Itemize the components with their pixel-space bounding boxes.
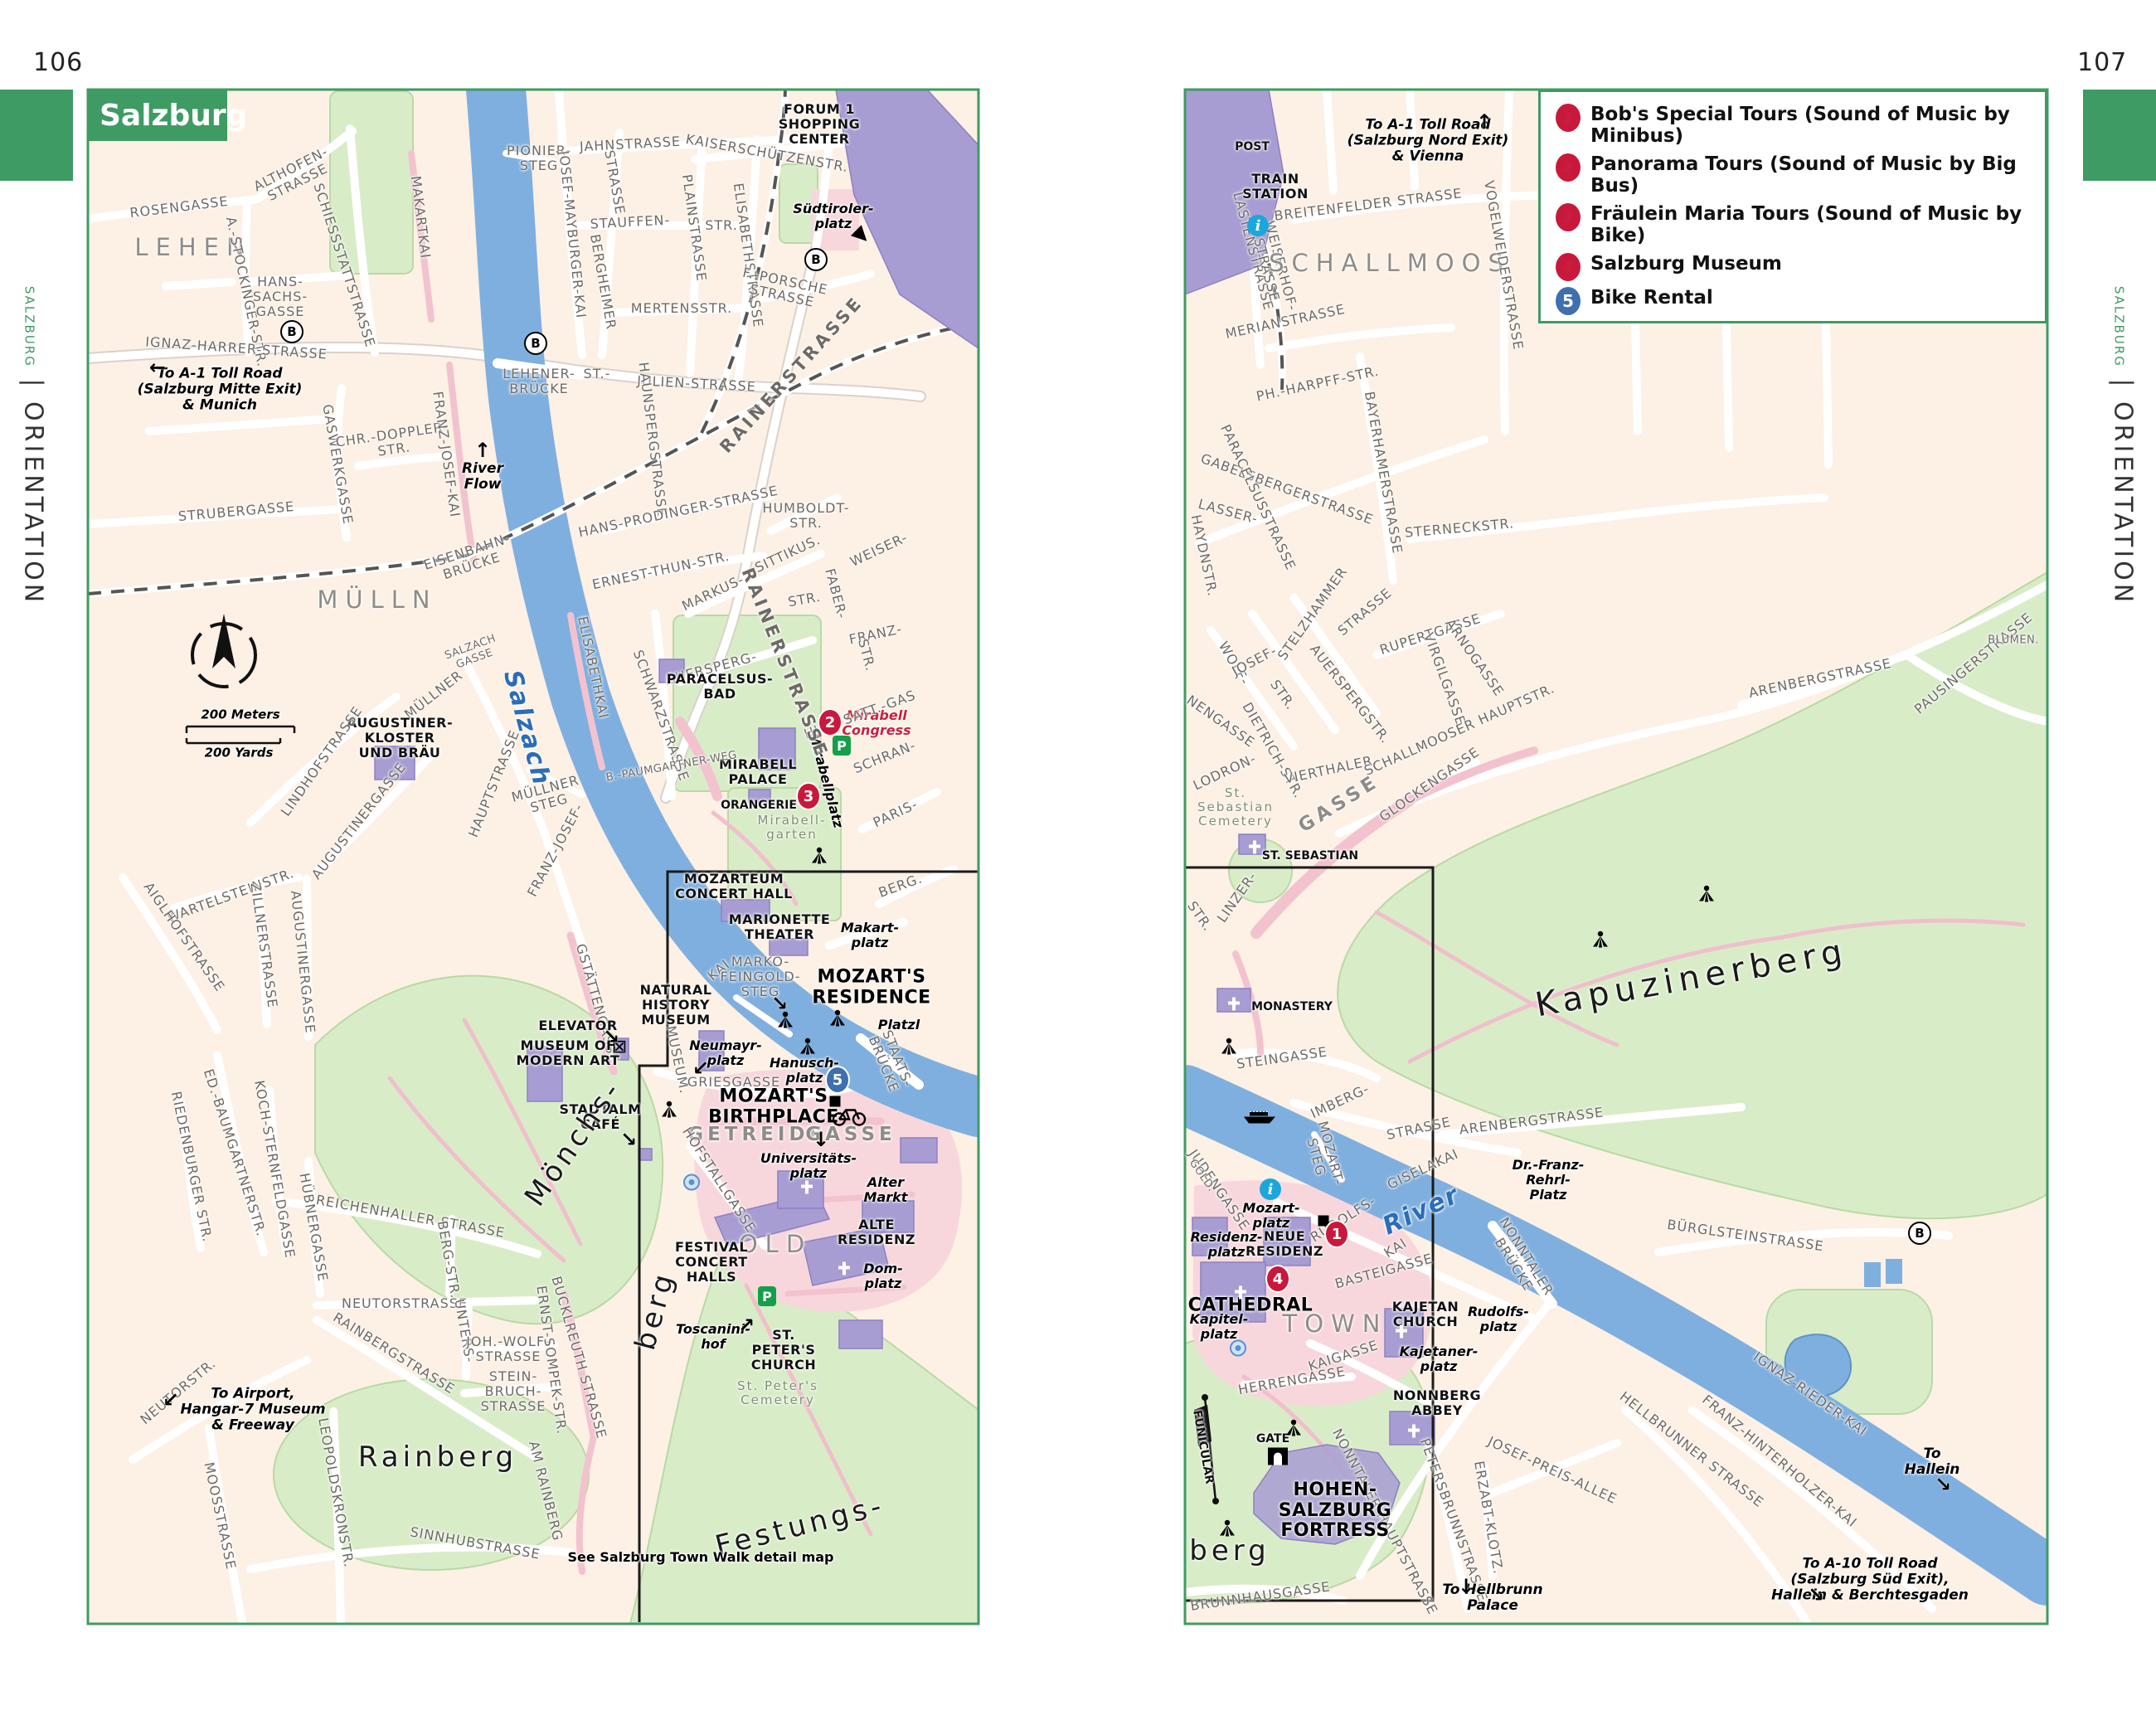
sidebar-tab-right: SALZBURG | ORIENTATION (2109, 280, 2138, 612)
legend-label: Bob's Special Tours (Sound of Music by M… (1590, 104, 2037, 148)
direction-arrow-icon: ↙ (163, 1390, 179, 1410)
map-label: To A-10 Toll Road (Salzburg Süd Exit), H… (1771, 1556, 1969, 1603)
direction-arrow-icon: ← (149, 357, 166, 377)
church-icon (1393, 1324, 1410, 1343)
sidebar-divider: | (19, 378, 48, 390)
sight-marker-3: 3 (796, 782, 821, 810)
sidebar-orientation: ORIENTATION (19, 401, 48, 605)
legend-item: 5 Bike Rental (1556, 287, 2037, 315)
sidebar-block-right (2083, 90, 2156, 181)
map-label: Kajetaner- platz (1400, 1344, 1479, 1374)
sidebar-orientation: ORIENTATION (2109, 401, 2138, 605)
church-icon (1226, 996, 1242, 1015)
sight-icon (828, 1008, 847, 1029)
legend-marker-5: 5 (1556, 287, 1581, 315)
sight-marker-1: 1 (1324, 1220, 1349, 1248)
parking-icon: P (758, 1286, 776, 1306)
sight-marker-4: 4 (1265, 1265, 1290, 1293)
map-label: 200 Yards (205, 746, 274, 760)
fortress-gate-icon (1267, 1446, 1289, 1469)
sidebar-block-left (0, 90, 73, 181)
direction-arrow-icon: ↑ (474, 440, 491, 460)
page-number-right: 107 (2077, 48, 2127, 77)
map-label: To Airport, Hangar-7 Museum & Freeway (180, 1386, 325, 1433)
fountain-icon (682, 1173, 701, 1194)
direction-arrow-icon: ↘ (603, 1027, 619, 1047)
map-label: HANS- SACHS- GASSE (253, 275, 308, 319)
church-icon (799, 1179, 815, 1198)
map-label: MARIONETTE THEATER (729, 912, 831, 942)
direction-arrow-icon: ↙ (692, 1058, 709, 1078)
legend-marker-4: 4 (1556, 253, 1581, 281)
sight-icon (660, 1100, 678, 1120)
map-label: ST. SEBASTIAN (1262, 850, 1358, 863)
legend-item: 4 Salzburg Museum (1556, 253, 2037, 281)
sight-icon (1218, 1518, 1236, 1539)
legend-marker-3: 3 (1556, 203, 1581, 231)
map-label: NONNBERG ABBEY (1393, 1388, 1481, 1418)
map-label: JOH.-WOLF- STRASSE (466, 1334, 551, 1364)
direction-arrow-icon: ↓ (1458, 1577, 1474, 1596)
sight-marker-5: 5 (825, 1066, 850, 1094)
map-title-text: Salzburg (100, 99, 247, 133)
bus-stop-icon: B (1908, 1222, 1931, 1245)
map-label: River Flow (462, 461, 503, 493)
map-label: MARKO- FEINGOLD- STEG (721, 955, 801, 999)
map-label: STEIN- BRUCH- STRASSE (481, 1369, 546, 1414)
map-label: Rainberg (358, 1441, 517, 1473)
legend-label: Bike Rental (1590, 287, 1713, 309)
sight-marker-2: 2 (818, 708, 842, 736)
direction-arrow-icon: ↘ (620, 1130, 637, 1149)
sight-icon (799, 1037, 817, 1057)
map-label: Kapitel- platz (1190, 1312, 1249, 1342)
direction-arrow-icon: ↘ (1808, 1585, 1824, 1605)
sight-icon (1591, 930, 1610, 950)
map-label: Rudolfs- platz (1468, 1305, 1529, 1334)
boat-cruise-icon (1243, 1109, 1276, 1128)
map-label: TRAIN STATION (1242, 172, 1309, 202)
map-label: NEUE RESIDENZ (1246, 1229, 1323, 1259)
map-label: OLD (739, 1231, 812, 1257)
legend-label: Fräulein Maria Tours (Sound of Music by … (1590, 203, 2037, 247)
map-label: To Hallein (1905, 1446, 1960, 1478)
map-label: BLUMEN. (1988, 635, 2039, 648)
map-title: Salzburg (88, 90, 227, 141)
map-label: SCHALLMOOS (1269, 250, 1511, 276)
map-label: STR. (705, 218, 738, 233)
sight-icon (1697, 884, 1716, 905)
map-label: See Salzburg Town Walk detail map (568, 1550, 834, 1565)
sight-icon (1220, 1037, 1238, 1057)
map-label: MERTENSSTR. (631, 301, 732, 316)
bus-stop-icon: B (524, 332, 547, 355)
map-label: 200 Meters (201, 708, 279, 722)
direction-arrow-icon: ↗ (738, 1315, 755, 1335)
church-icon (1406, 1423, 1422, 1442)
book-spread: 106 107 SALZBURG | ORIENTATION SALZBURG … (0, 0, 2156, 1725)
direction-arrow-icon: ↓ (813, 1130, 829, 1149)
legend-item: 2 Panorama Tours (Sound of Music by Big … (1556, 153, 2037, 197)
map-label: ALTE RESIDENZ (838, 1217, 915, 1247)
map-label: Dr.-Franz- Rehrl- Platz (1513, 1158, 1585, 1203)
info-icon: i (1260, 1178, 1281, 1200)
map-label: Makart- platz (841, 921, 899, 950)
map-label: Mozart- platz (1242, 1201, 1299, 1231)
map-label: MÜLLN (317, 586, 437, 613)
map-label: MOZARTEUM CONCERT HALL (675, 872, 793, 901)
map-label: NATURAL HISTORY MUSEUM (640, 983, 712, 1028)
map-label: MOZART'S RESIDENCE (812, 967, 930, 1008)
bus-stop-icon: B (804, 248, 828, 271)
map-legend: 1 Bob's Special Tours (Sound of Music by… (1538, 90, 2047, 323)
legend-label: Panorama Tours (Sound of Music by Big Bu… (1590, 153, 2037, 197)
sidebar-salzburg: SALZBURG (22, 286, 37, 367)
map-label: Universitäts- platz (760, 1151, 857, 1181)
map-label: MOZART'S BIRTHPLACE (708, 1086, 839, 1127)
legend-item: 1 Bob's Special Tours (Sound of Music by… (1556, 104, 2037, 148)
legend-marker-2: 2 (1556, 153, 1581, 182)
direction-arrow-icon: ↑ (1476, 112, 1493, 132)
map-label: PARACELSUS- BAD (667, 672, 773, 702)
map-label: berg (1189, 1535, 1270, 1567)
parking-icon: P (833, 736, 851, 756)
map-label: HOHEN- SALZBURG FORTRESS (1279, 1480, 1391, 1542)
map-label: Alter Markt (864, 1175, 908, 1205)
info-icon: i (1247, 215, 1269, 236)
sidebar-divider: | (2109, 378, 2138, 390)
legend-marker-1: 1 (1556, 104, 1581, 132)
church-icon (1232, 1285, 1249, 1304)
map-label: MONASTERY (1251, 1001, 1333, 1014)
map-label: TOWN (1283, 1310, 1388, 1337)
map-label: St. Sebastian Cemetery (1197, 786, 1274, 828)
map-label: HUMBOLDT- STR. (762, 501, 849, 531)
map-label: ORANGERIE (721, 799, 797, 813)
church-icon (836, 1261, 852, 1280)
map-label: ST.- (584, 367, 611, 381)
map-label: FESTIVAL CONCERT HALLS (675, 1240, 748, 1285)
fountain-icon (1229, 1339, 1247, 1360)
church-icon (1246, 839, 1263, 858)
tour-office-icon (830, 1096, 841, 1107)
direction-arrow-icon: ↘ (1935, 1475, 1951, 1494)
sight-icon (810, 846, 828, 867)
map-label: St. Peter's Cemetery (737, 1379, 818, 1407)
bike-rental-icon (832, 1105, 867, 1130)
map-label: ST. PETER'S CHURCH (751, 1328, 817, 1373)
direction-arrow-icon: ↘ (771, 994, 788, 1013)
map-label: FORUM 1 SHOPPING CENTER (779, 102, 860, 147)
sidebar-salzburg: SALZBURG (2112, 286, 2127, 367)
sidebar-tab-left: SALZBURG | ORIENTATION (19, 280, 48, 612)
map-label: AUGUSTINER- KLOSTER UND BRÄU (347, 716, 453, 760)
map-label: LEHENER- BRÜCKE (503, 367, 575, 396)
map-label: POST (1235, 141, 1270, 154)
map-label: Platzl (878, 1018, 920, 1033)
page-number-left: 106 (33, 48, 83, 77)
map-label: Dom- platz (863, 1261, 903, 1291)
sight-icon (1284, 1418, 1303, 1439)
legend-label: Salzburg Museum (1590, 253, 1782, 275)
map-label: Mirabell- garten (758, 814, 827, 842)
legend-item: 3 Fräulein Maria Tours (Sound of Music b… (1556, 203, 2037, 247)
bus-stop-icon: B (280, 320, 303, 343)
